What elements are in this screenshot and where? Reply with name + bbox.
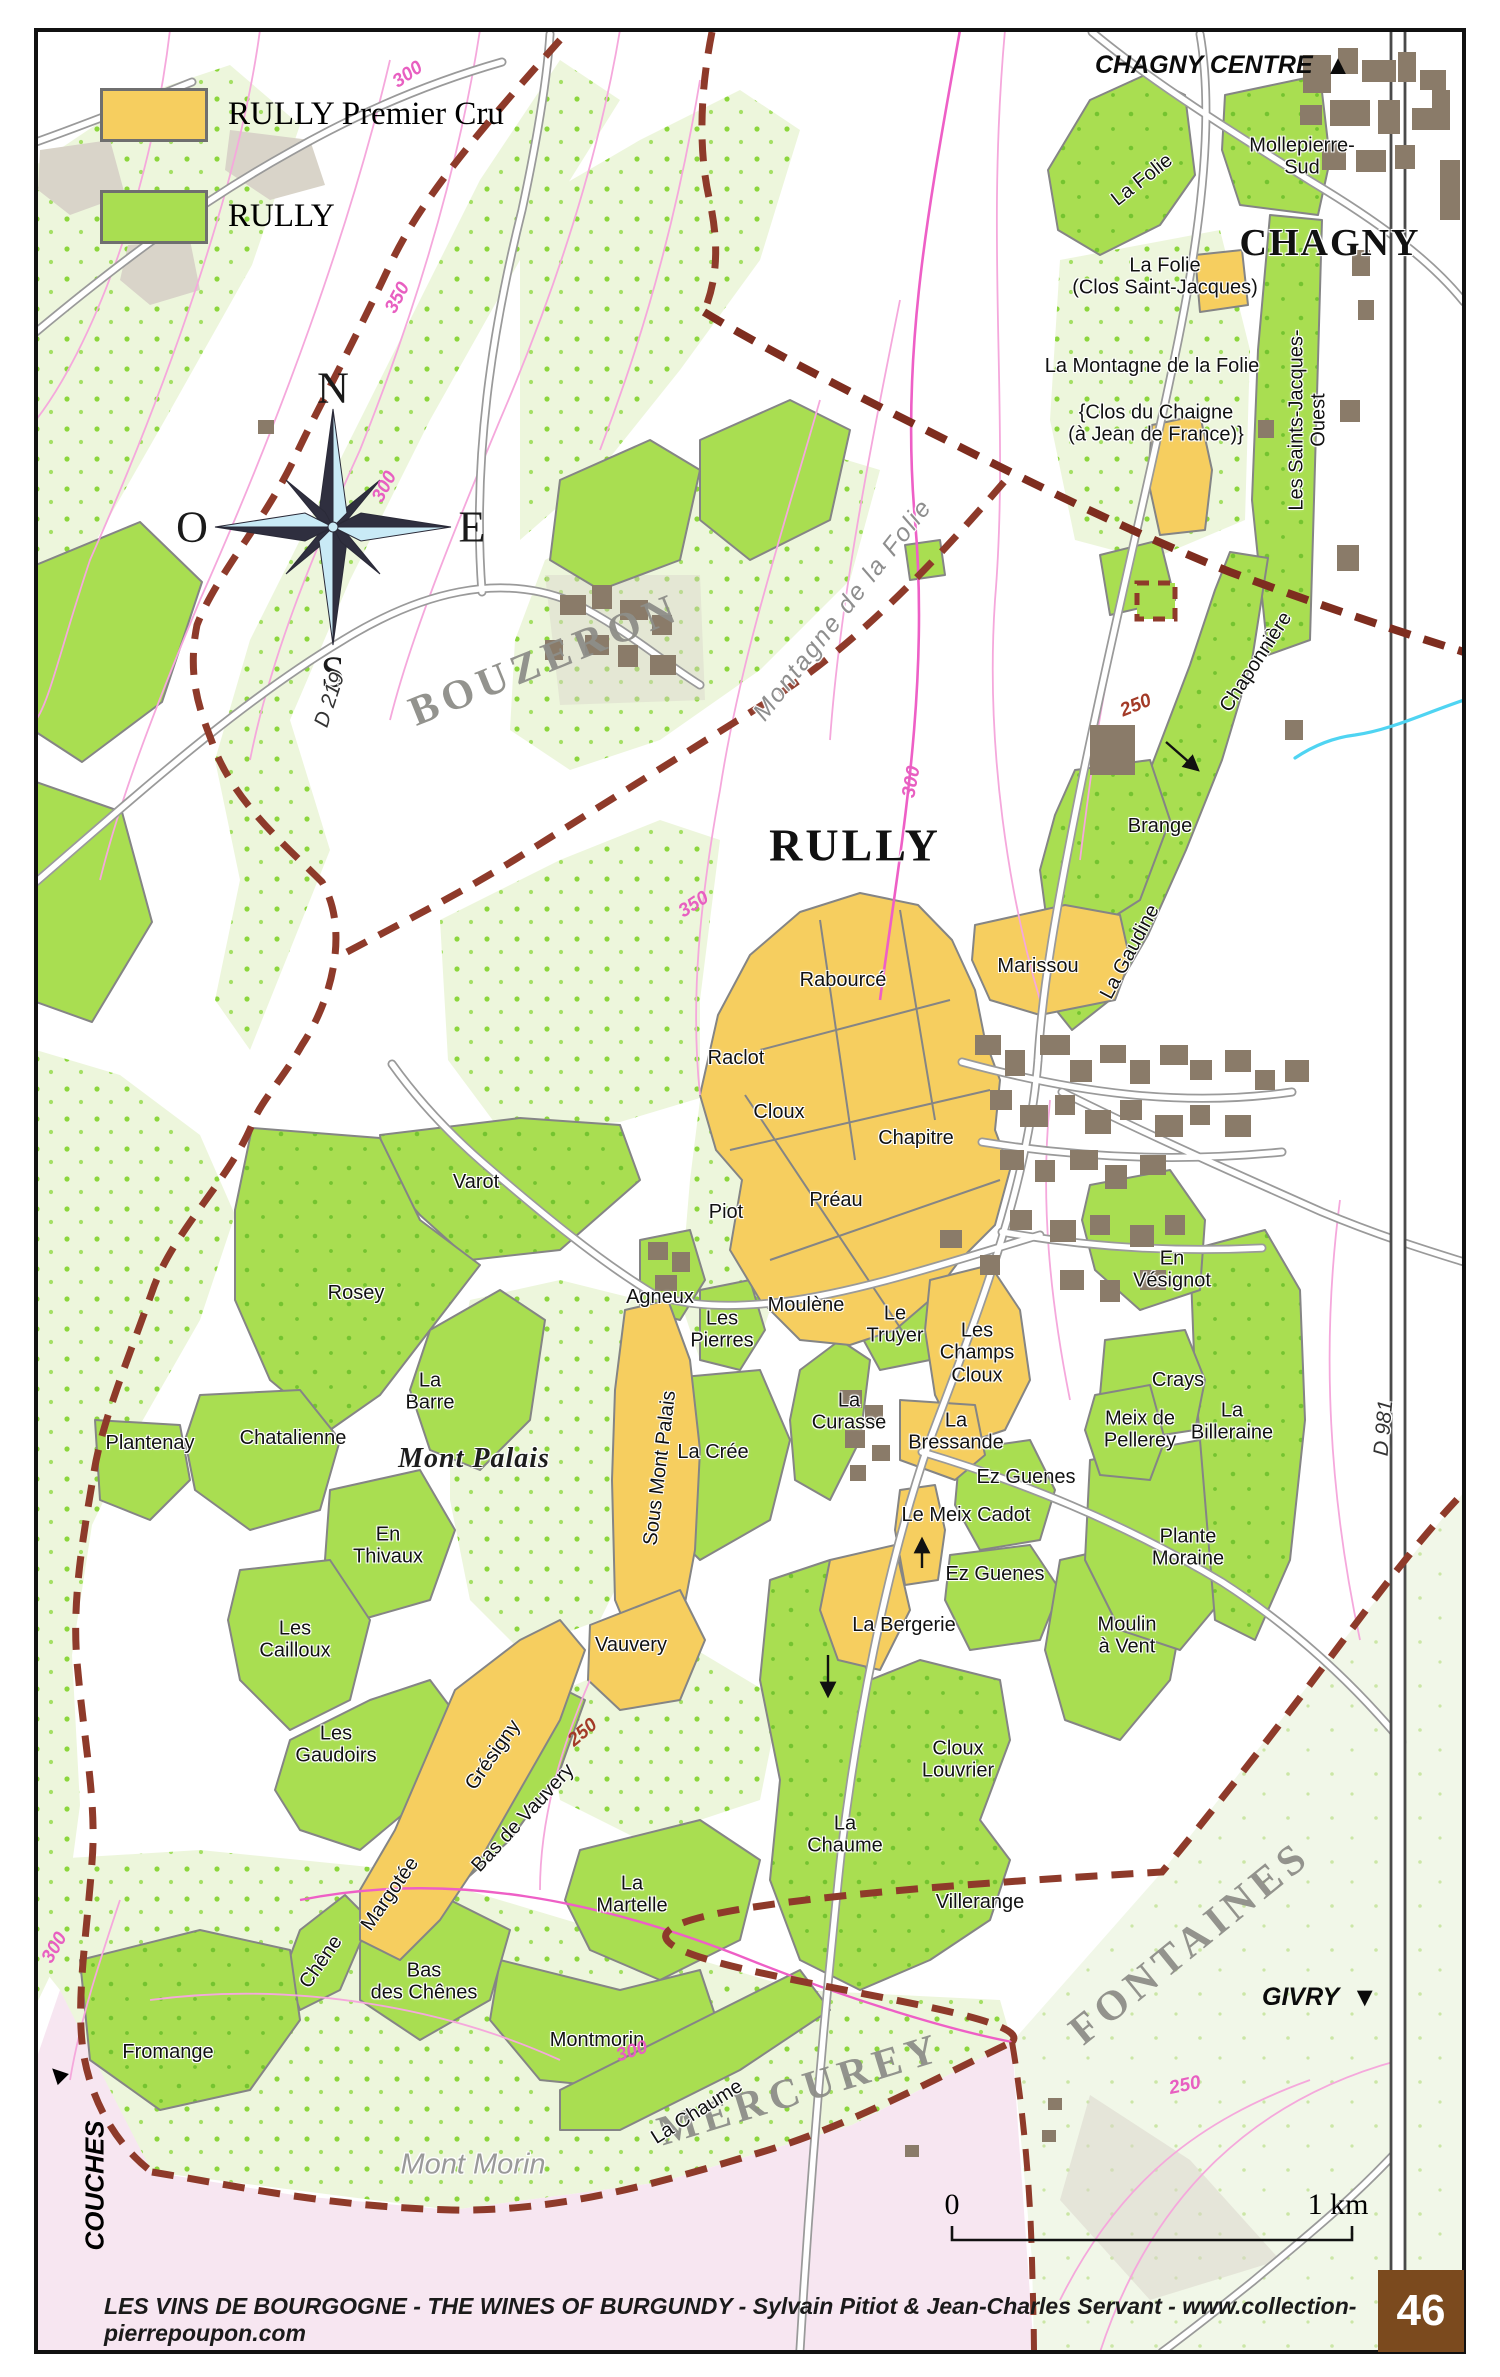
compass-south: S xyxy=(321,647,345,698)
edge-label-couches: COUCHES xyxy=(80,2120,111,2250)
arrow-down-icon: ▼ xyxy=(1351,1982,1378,2013)
legend-label-premier-cru: RULLY Premier Cru xyxy=(228,96,504,133)
page-number-badge: 46 xyxy=(1378,2270,1464,2352)
footer-credit: LES VINS DE BOURGOGNE - THE WINES OF BUR… xyxy=(104,2293,1364,2347)
legend-label-village: RULLY xyxy=(228,198,335,235)
map-canvas xyxy=(0,0,1500,2377)
edge-label-givry: GIVRY ▼ xyxy=(1262,1982,1378,2013)
arrow-up-icon: ▲ xyxy=(1325,50,1352,81)
legend-swatch-village xyxy=(100,190,208,244)
legend-swatch-premier-cru xyxy=(100,88,208,142)
compass-east: E xyxy=(459,502,486,553)
scale-km-label: 1 km xyxy=(1308,2188,1369,2222)
compass-north: N xyxy=(317,363,349,414)
road-d981 xyxy=(1391,32,1405,2350)
edge-label-chagny-centre: CHAGNY CENTRE ▲ xyxy=(1095,50,1351,81)
map-page: RULLY Premier Cru RULLY N E S O CHAGNY C… xyxy=(0,0,1500,2377)
compass-west: O xyxy=(176,502,208,553)
scale-zero-label: 0 xyxy=(945,2188,960,2222)
